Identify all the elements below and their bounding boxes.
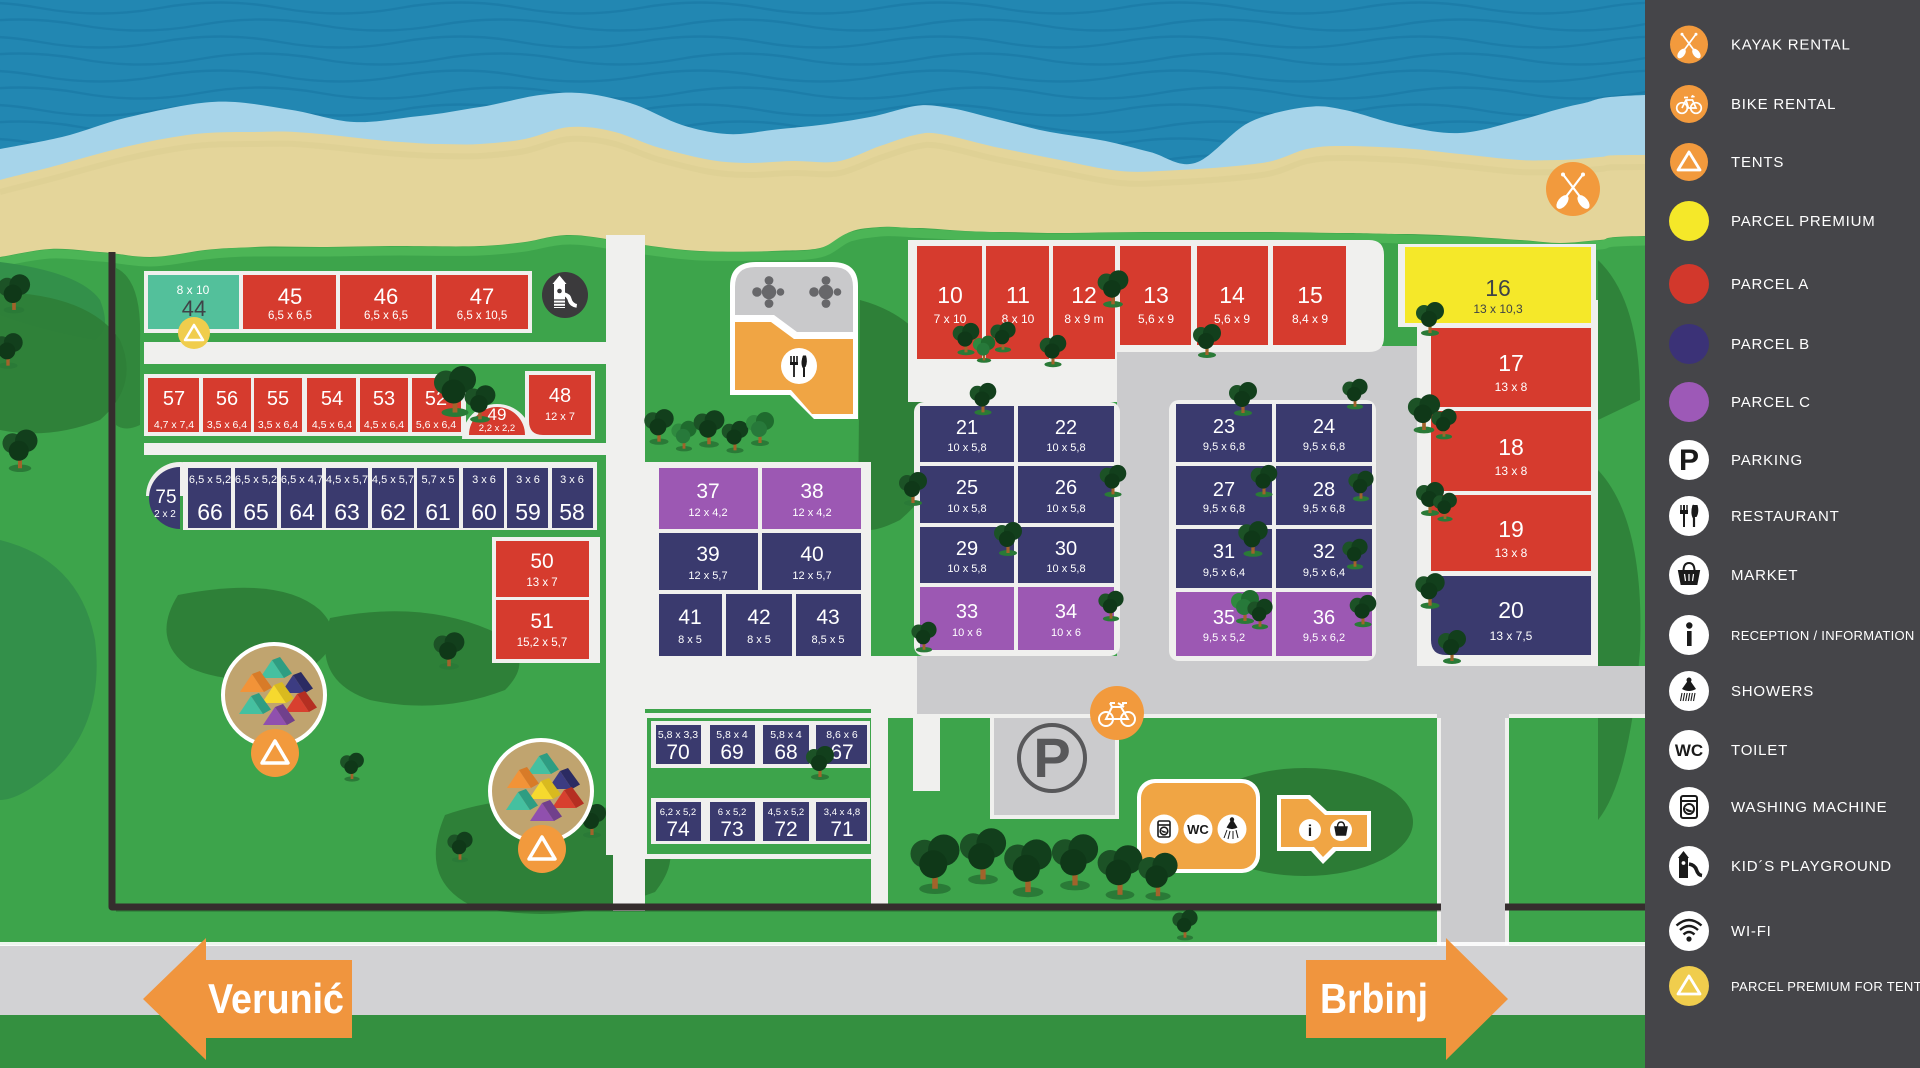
svg-text:13: 13 [1143, 282, 1169, 308]
svg-text:6,5 x 5,2: 6,5 x 5,2 [189, 474, 231, 486]
svg-text:PARKING: PARKING [1731, 452, 1803, 469]
svg-text:4,7 x 7,4: 4,7 x 7,4 [154, 419, 194, 431]
svg-text:38: 38 [800, 480, 823, 503]
svg-text:10 x 5,8: 10 x 5,8 [1046, 563, 1085, 575]
svg-text:23: 23 [1213, 416, 1235, 438]
svg-text:4,5 x 6,4: 4,5 x 6,4 [364, 419, 404, 431]
svg-text:31: 31 [1213, 541, 1235, 563]
svg-text:24: 24 [1313, 416, 1335, 438]
svg-text:13 x 8: 13 x 8 [1495, 380, 1528, 394]
svg-text:43: 43 [816, 606, 839, 629]
svg-text:30: 30 [1055, 538, 1077, 560]
svg-text:15,2 x 5,7: 15,2 x 5,7 [517, 637, 568, 649]
svg-text:8 x 9 m: 8 x 9 m [1064, 312, 1103, 326]
svg-text:TENTS: TENTS [1731, 154, 1784, 171]
svg-text:5,8 x 4: 5,8 x 4 [716, 729, 748, 741]
svg-text:10 x 5,8: 10 x 5,8 [947, 503, 986, 515]
svg-text:6,5 x 5,2: 6,5 x 5,2 [235, 474, 277, 486]
svg-text:2 x 2: 2 x 2 [154, 509, 176, 520]
svg-text:KAYAK RENTAL: KAYAK RENTAL [1731, 37, 1851, 54]
svg-text:33: 33 [956, 601, 978, 623]
svg-text:8 x 5: 8 x 5 [678, 634, 702, 646]
svg-text:5,6 x 6,4: 5,6 x 6,4 [416, 419, 456, 431]
svg-text:8,6 x 6: 8,6 x 6 [826, 729, 858, 741]
svg-text:WC: WC [1675, 741, 1703, 760]
svg-text:WASHING MACHINE: WASHING MACHINE [1731, 799, 1887, 816]
svg-text:Brbinj: Brbinj [1320, 975, 1428, 1022]
svg-text:9,5 x 6,8: 9,5 x 6,8 [1303, 441, 1345, 453]
svg-text:3 x 6: 3 x 6 [472, 474, 496, 486]
svg-text:29: 29 [956, 538, 978, 560]
svg-text:15: 15 [1297, 282, 1323, 308]
svg-text:61: 61 [425, 499, 451, 525]
svg-text:Verunić: Verunić [208, 975, 344, 1022]
svg-text:21: 21 [956, 417, 978, 439]
svg-text:65: 65 [243, 499, 269, 525]
svg-text:19: 19 [1498, 516, 1524, 542]
svg-text:5,8 x 4: 5,8 x 4 [770, 729, 802, 741]
svg-text:4,5 x 6,4: 4,5 x 6,4 [312, 419, 352, 431]
svg-text:34: 34 [1055, 601, 1077, 623]
svg-text:8 x 10: 8 x 10 [177, 283, 210, 297]
svg-text:5,8 x 3,3: 5,8 x 3,3 [658, 729, 698, 741]
svg-text:12 x 4,2: 12 x 4,2 [792, 507, 831, 519]
svg-text:9,5 x 6,2: 9,5 x 6,2 [1303, 632, 1345, 644]
svg-text:46: 46 [374, 284, 398, 309]
svg-text:28: 28 [1313, 479, 1335, 501]
svg-text:3,5 x 6,4: 3,5 x 6,4 [207, 419, 247, 431]
svg-text:4,5 x 5,2: 4,5 x 5,2 [768, 807, 804, 818]
svg-text:6,5 x 4,7: 6,5 x 4,7 [281, 474, 323, 486]
svg-text:18: 18 [1498, 434, 1524, 460]
svg-text:48: 48 [549, 385, 571, 407]
svg-text:8 x 5: 8 x 5 [747, 634, 771, 646]
svg-text:10 x 5,8: 10 x 5,8 [1046, 442, 1085, 454]
svg-text:9,5 x 6,4: 9,5 x 6,4 [1203, 567, 1245, 579]
svg-text:66: 66 [197, 499, 223, 525]
svg-text:WI-FI: WI-FI [1731, 923, 1772, 940]
svg-text:10 x 6: 10 x 6 [952, 627, 982, 639]
svg-text:9,5 x 6,8: 9,5 x 6,8 [1303, 503, 1345, 515]
svg-text:58: 58 [559, 499, 585, 525]
svg-text:17: 17 [1498, 350, 1524, 376]
svg-text:70: 70 [666, 741, 689, 764]
svg-text:20: 20 [1498, 597, 1524, 623]
svg-text:69: 69 [720, 741, 743, 764]
svg-text:3,5 x 6,4: 3,5 x 6,4 [258, 419, 298, 431]
svg-text:13 x 10,3: 13 x 10,3 [1473, 302, 1523, 316]
svg-text:10 x 5,8: 10 x 5,8 [947, 442, 986, 454]
svg-text:8,4 x 9: 8,4 x 9 [1292, 312, 1328, 326]
svg-text:40: 40 [800, 543, 823, 566]
svg-text:36: 36 [1313, 607, 1335, 629]
svg-text:74: 74 [666, 818, 690, 841]
svg-text:62: 62 [380, 499, 406, 525]
svg-text:11: 11 [1006, 282, 1030, 308]
svg-text:6,5 x 10,5: 6,5 x 10,5 [457, 310, 508, 322]
svg-text:49: 49 [488, 405, 507, 424]
svg-text:RESTAURANT: RESTAURANT [1731, 508, 1840, 525]
svg-text:5,6 x 9: 5,6 x 9 [1214, 312, 1250, 326]
svg-text:55: 55 [267, 388, 289, 410]
svg-text:8,5 x 5: 8,5 x 5 [811, 634, 844, 646]
svg-text:3,4 x 4,8: 3,4 x 4,8 [824, 807, 860, 818]
svg-text:73: 73 [720, 818, 743, 841]
svg-text:RECEPTION / INFORMATION: RECEPTION / INFORMATION [1731, 628, 1915, 643]
svg-text:14: 14 [1219, 282, 1245, 308]
svg-text:13 x 7: 13 x 7 [526, 577, 557, 589]
svg-text:35: 35 [1213, 607, 1235, 629]
svg-text:P: P [1679, 444, 1699, 477]
svg-text:63: 63 [334, 499, 360, 525]
svg-text:10 x 5,8: 10 x 5,8 [947, 563, 986, 575]
svg-text:67: 67 [830, 741, 853, 764]
svg-text:12: 12 [1071, 282, 1097, 308]
svg-text:6,5 x 6,5: 6,5 x 6,5 [364, 310, 408, 322]
svg-text:75: 75 [155, 487, 176, 508]
svg-text:16: 16 [1485, 275, 1511, 301]
svg-text:39: 39 [696, 543, 719, 566]
svg-text:MARKET: MARKET [1731, 567, 1798, 584]
svg-text:3 x 6: 3 x 6 [560, 474, 584, 486]
svg-text:9,5 x 5,2: 9,5 x 5,2 [1203, 632, 1245, 644]
svg-text:7 x 10: 7 x 10 [934, 312, 967, 326]
svg-text:42: 42 [747, 606, 770, 629]
svg-text:4,5 x 5,7: 4,5 x 5,7 [372, 474, 414, 486]
svg-text:12 x 7: 12 x 7 [545, 411, 575, 423]
svg-text:72: 72 [774, 818, 797, 841]
svg-text:13 x 8: 13 x 8 [1495, 546, 1528, 560]
svg-text:45: 45 [278, 284, 302, 309]
svg-text:60: 60 [471, 499, 497, 525]
svg-text:9,5 x 6,8: 9,5 x 6,8 [1203, 441, 1245, 453]
svg-text:4,5 x 5,7: 4,5 x 5,7 [326, 474, 368, 486]
svg-text:WC: WC [1187, 822, 1209, 837]
svg-text:57: 57 [163, 388, 185, 410]
svg-text:PARCEL PREMIUM: PARCEL PREMIUM [1731, 213, 1876, 230]
svg-text:22: 22 [1055, 417, 1077, 439]
svg-text:27: 27 [1213, 479, 1235, 501]
svg-text:47: 47 [470, 284, 494, 309]
svg-text:10: 10 [937, 282, 963, 308]
svg-text:P: P [1033, 726, 1070, 789]
svg-text:9,5 x 6,8: 9,5 x 6,8 [1203, 503, 1245, 515]
svg-text:71: 71 [830, 818, 853, 841]
svg-text:12 x 5,7: 12 x 5,7 [688, 570, 727, 582]
svg-text:10 x 5,8: 10 x 5,8 [1046, 503, 1085, 515]
svg-text:37: 37 [696, 480, 719, 503]
svg-text:59: 59 [515, 499, 541, 525]
svg-text:13 x 8: 13 x 8 [1495, 464, 1528, 478]
svg-text:26: 26 [1055, 477, 1077, 499]
svg-text:i: i [1308, 823, 1312, 840]
svg-text:PARCEL A: PARCEL A [1731, 276, 1809, 293]
svg-text:68: 68 [774, 741, 797, 764]
svg-text:32: 32 [1313, 541, 1335, 563]
svg-text:12 x 4,2: 12 x 4,2 [688, 507, 727, 519]
svg-text:SHOWERS: SHOWERS [1731, 683, 1814, 700]
svg-text:5,7 x 5: 5,7 x 5 [421, 474, 454, 486]
svg-text:51: 51 [530, 610, 553, 633]
svg-text:25: 25 [956, 477, 978, 499]
svg-text:5,6 x 9: 5,6 x 9 [1138, 312, 1174, 326]
svg-text:PARCEL B: PARCEL B [1731, 336, 1810, 353]
svg-text:13 x 7,5: 13 x 7,5 [1490, 629, 1533, 643]
svg-text:50: 50 [530, 550, 553, 573]
svg-text:54: 54 [321, 388, 343, 410]
svg-text:53: 53 [373, 388, 395, 410]
svg-text:56: 56 [216, 388, 238, 410]
svg-text:12 x 5,7: 12 x 5,7 [792, 570, 831, 582]
svg-text:41: 41 [678, 606, 701, 629]
svg-text:9,5 x 6,4: 9,5 x 6,4 [1303, 567, 1345, 579]
svg-text:2,2 x 2,2: 2,2 x 2,2 [479, 423, 515, 434]
svg-text:TOILET: TOILET [1731, 742, 1788, 759]
svg-text:6,5 x 6,5: 6,5 x 6,5 [268, 310, 312, 322]
svg-text:64: 64 [289, 499, 315, 525]
svg-text:BIKE RENTAL: BIKE RENTAL [1731, 96, 1836, 113]
svg-text:6 x 5,2: 6 x 5,2 [718, 807, 747, 818]
svg-text:PARCEL C: PARCEL C [1731, 394, 1811, 411]
svg-text:10 x 6: 10 x 6 [1051, 627, 1081, 639]
svg-text:6,2 x 5,2: 6,2 x 5,2 [660, 807, 696, 818]
svg-text:KID´S PLAYGROUND: KID´S PLAYGROUND [1731, 858, 1892, 875]
svg-text:PARCEL PREMIUM FOR TENT: PARCEL PREMIUM FOR TENT [1731, 979, 1920, 994]
svg-text:3 x 6: 3 x 6 [516, 474, 540, 486]
